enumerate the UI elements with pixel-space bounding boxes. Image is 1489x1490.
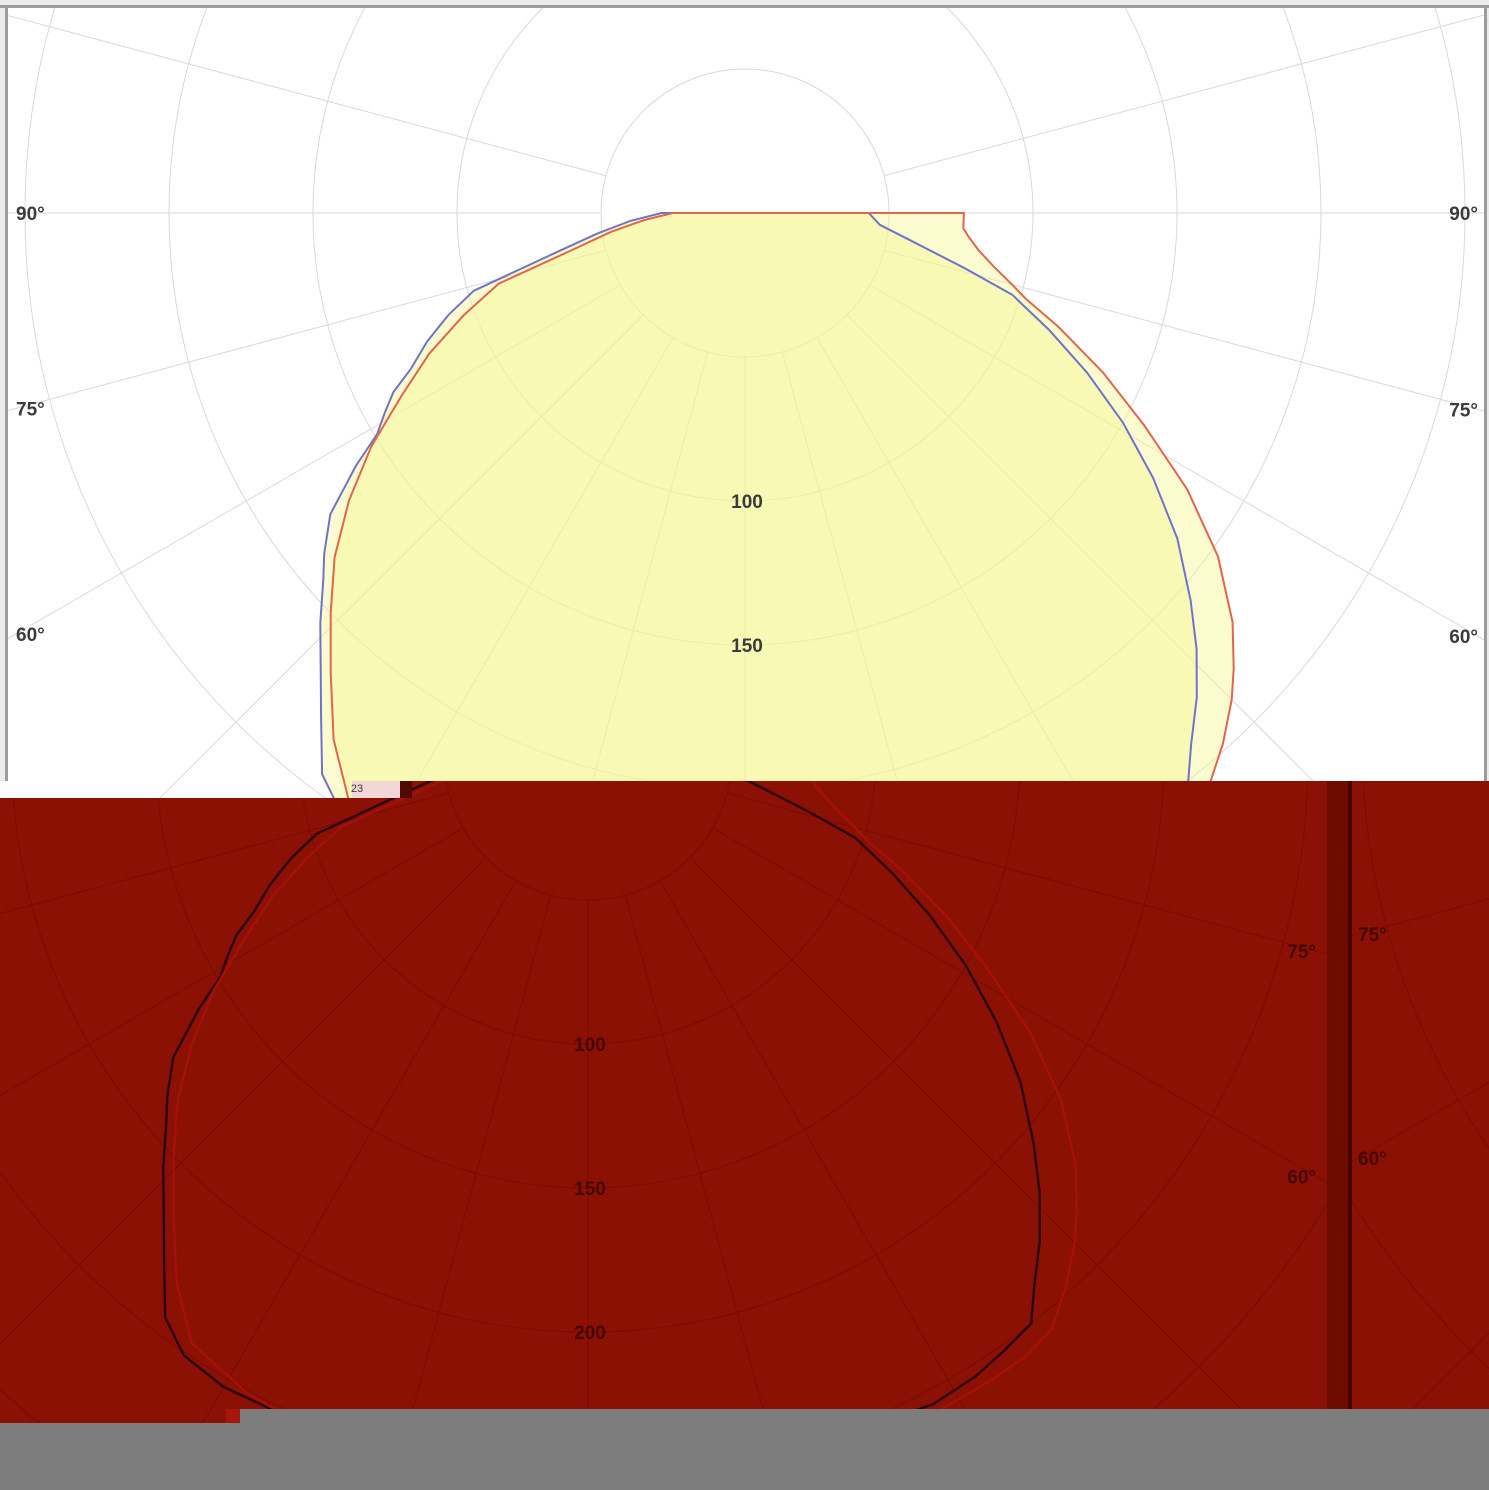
ring-value-label: 150 (731, 636, 763, 657)
ring-value-label: 150 (574, 1179, 606, 1200)
artifact-text: 23 (351, 783, 363, 795)
angle-label-right: 75° (1287, 942, 1316, 963)
angle-label-right: 75° (1449, 400, 1478, 421)
ring-value-label: 100 (574, 1035, 606, 1056)
angle-label-left: 60° (16, 625, 45, 646)
angle-label-left: 90° (16, 204, 45, 225)
frame-edge-left-outer (0, 8, 5, 781)
artifact-maroon-block (400, 781, 412, 798)
glitch-artifact-band: 23 (351, 781, 412, 798)
taskbar-bar-right (240, 1409, 1489, 1490)
screenshot-canvas: 10015020090°90°75°75°60°60° 10015020090°… (0, 0, 1489, 1490)
angle-label-right: 90° (1449, 204, 1478, 225)
scrollbar-stripe (1327, 781, 1348, 1409)
angle-label-left: 75° (1358, 925, 1387, 946)
angle-label-left: 60° (1358, 1149, 1387, 1170)
frame-edge-right-line (1484, 8, 1487, 781)
angle-label-right: 60° (1449, 627, 1478, 648)
red-overlay-block-left (0, 798, 412, 1409)
glitch-notch-block (226, 1409, 240, 1423)
taskbar-bar-left (0, 1423, 240, 1490)
stale-window-edge-line (1348, 781, 1352, 1409)
frame-edge-left-line (5, 8, 8, 781)
angle-label-right: 60° (1287, 1167, 1316, 1188)
frame-edge-top-outer (0, 0, 1489, 5)
angle-label-left: 75° (16, 399, 45, 420)
frame-edge-top-line (0, 5, 1489, 8)
glitched-screenshot-root: 10015020090°90°75°75°60°60° 10015020090°… (0, 0, 1489, 1490)
red-overlay-block-center (412, 781, 1327, 1409)
ring-value-label: 200 (574, 1323, 606, 1344)
ring-value-label: 100 (731, 492, 763, 513)
red-overlay-block-right (1352, 781, 1489, 1409)
